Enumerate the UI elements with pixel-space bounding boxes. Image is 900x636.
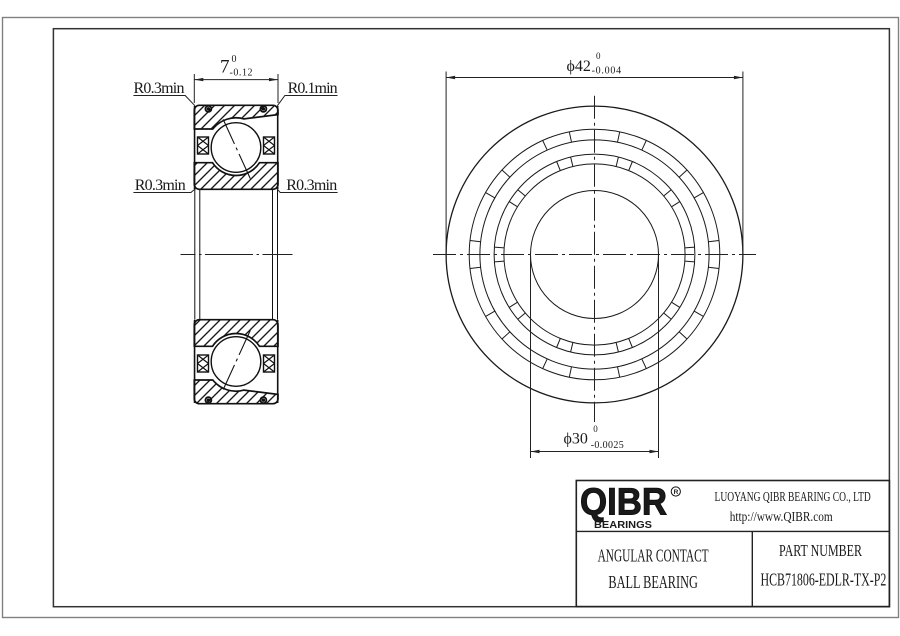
svg-text:BEARINGS: BEARINGS bbox=[594, 519, 652, 531]
svg-text:HCB71806-EDLR-TX-P2: HCB71806-EDLR-TX-P2 bbox=[761, 570, 887, 590]
svg-text:R0.3min: R0.3min bbox=[286, 177, 337, 194]
svg-text:ϕ30: ϕ30 bbox=[564, 431, 588, 448]
svg-text:http://www.QIBR.com: http://www.QIBR.com bbox=[730, 509, 833, 524]
svg-text:0: 0 bbox=[596, 51, 601, 61]
svg-text:7: 7 bbox=[220, 57, 230, 78]
svg-text:R: R bbox=[674, 489, 679, 496]
svg-text:R0.1min: R0.1min bbox=[288, 80, 338, 97]
svg-text:-0.12: -0.12 bbox=[230, 67, 253, 78]
svg-text:-0.0025: -0.0025 bbox=[591, 440, 624, 451]
svg-text:ANGULAR CONTACT: ANGULAR CONTACT bbox=[598, 545, 709, 565]
svg-text:R0.3min: R0.3min bbox=[134, 80, 185, 97]
svg-text:0: 0 bbox=[232, 54, 237, 65]
svg-text:-0.004: -0.004 bbox=[592, 65, 622, 76]
svg-text:PART NUMBER: PART NUMBER bbox=[779, 541, 862, 560]
svg-text:QIBR: QIBR bbox=[580, 482, 667, 524]
svg-text:0: 0 bbox=[593, 424, 598, 434]
svg-text:R0.3min: R0.3min bbox=[135, 177, 186, 194]
svg-text:ϕ42: ϕ42 bbox=[567, 58, 591, 75]
svg-text:LUOYANG QIBR BEARING CO., LTD: LUOYANG QIBR BEARING CO., LTD bbox=[715, 489, 871, 504]
svg-text:BALL BEARING: BALL BEARING bbox=[608, 572, 698, 592]
